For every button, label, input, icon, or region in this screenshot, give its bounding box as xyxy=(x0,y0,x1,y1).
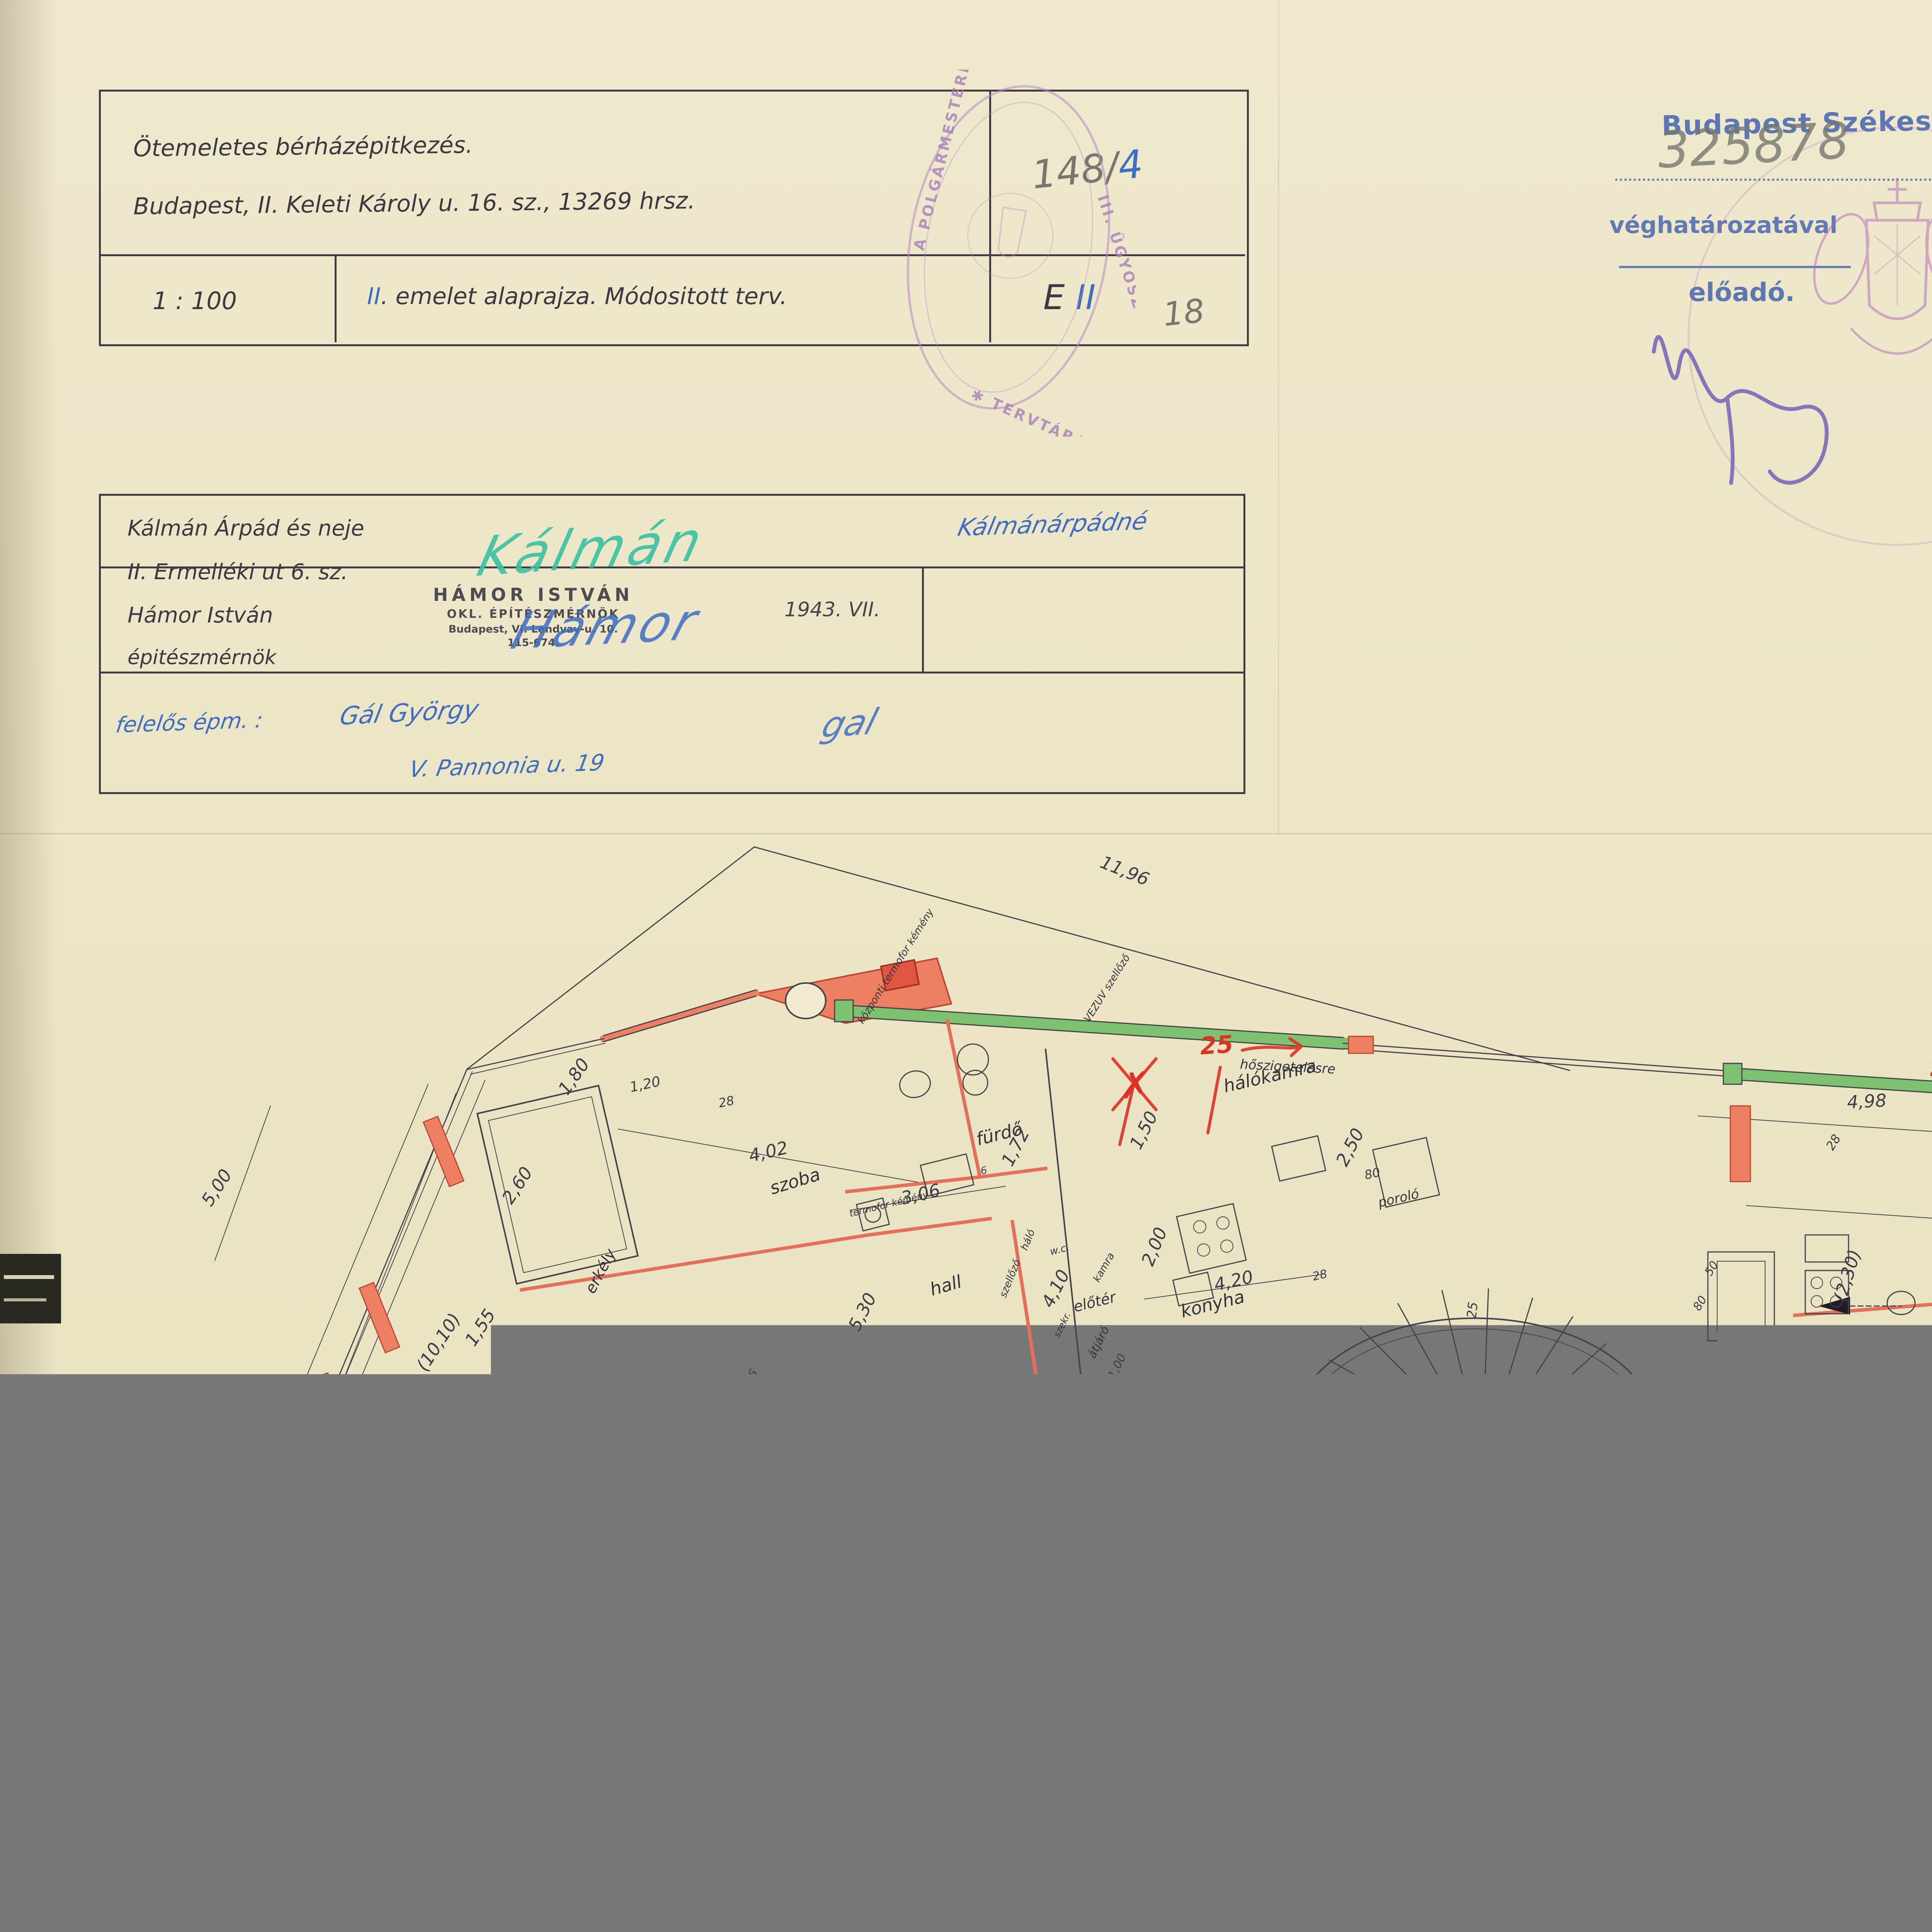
dim-label: 11,96 xyxy=(1097,851,1152,889)
dim-label: (1,70) xyxy=(376,1534,422,1590)
dim-label: 1,20 xyxy=(494,1449,533,1493)
room-label: erkély xyxy=(582,1245,620,1296)
dim-label: 1,31 xyxy=(1485,1375,1504,1408)
dim-label: 2,50 xyxy=(1478,1764,1510,1808)
dim-label: 2,10 xyxy=(1109,1541,1135,1576)
dim-label: 3,15 xyxy=(720,1825,763,1867)
dim-label: 28 xyxy=(1311,1267,1328,1284)
room-label: konyha xyxy=(1784,1416,1849,1442)
room-label: poroló xyxy=(1718,1326,1761,1345)
room-label: előtér xyxy=(1837,1612,1885,1634)
dim-label: 30 xyxy=(1301,1457,1318,1473)
room-label: szoba xyxy=(628,1411,684,1446)
room-label: konyha xyxy=(1191,1842,1255,1869)
room-label: szoba xyxy=(806,1694,862,1727)
dim-label: 6 xyxy=(1284,1894,1292,1907)
dim-label: 1,52 xyxy=(1797,1651,1830,1696)
dim-label: 6 xyxy=(1767,1487,1781,1498)
room-label: átjáró xyxy=(1028,1731,1076,1757)
dim-label: 82 xyxy=(1313,1661,1332,1678)
dim-label: 2,30 xyxy=(1201,1887,1242,1910)
dim-label: 82 xyxy=(1163,1661,1181,1678)
dim-label: 16 xyxy=(740,1367,761,1388)
room-label: konyha xyxy=(1179,1286,1247,1322)
room-label: w.c. xyxy=(1891,1321,1916,1338)
dim-label: 1,60 xyxy=(1470,1506,1495,1548)
dim-label: 1,00 xyxy=(1105,1352,1129,1381)
room-label: hall xyxy=(927,1271,964,1300)
dim-label: 1,40 xyxy=(1467,1595,1496,1638)
dim-label: 4,66 xyxy=(1852,1745,1877,1786)
room-label: fürdő xyxy=(981,1839,1029,1864)
dim-label: 1,20 xyxy=(628,1073,662,1095)
dim-label: 2,50 xyxy=(1332,1125,1368,1170)
dim-label: 6 xyxy=(836,1533,845,1546)
dim-label: 6 xyxy=(1524,1896,1531,1908)
dim-label: 2,50 xyxy=(1000,1889,1041,1912)
dim-label: 1,20 xyxy=(1877,1354,1907,1371)
dim-label: 80 xyxy=(1363,1165,1381,1182)
dim-label: 100 xyxy=(1871,1392,1893,1419)
dim-label: 4,55 xyxy=(923,1531,967,1561)
dim-label: 4,20 xyxy=(1212,1266,1255,1296)
room-label: szellőző xyxy=(1905,1592,1932,1608)
dim-label: 3,60 xyxy=(1232,1740,1264,1784)
room-label: w.c. xyxy=(1157,1608,1185,1627)
dim-label: 2,72 xyxy=(1764,1605,1798,1649)
dim-label: 1,50 xyxy=(1125,1108,1162,1153)
red-annotation: ✗ xyxy=(1120,1064,1151,1107)
dim-label: 1,85 xyxy=(1254,1509,1296,1536)
dim-label: 3,20 xyxy=(1333,1771,1365,1815)
dim-label: 16 xyxy=(1401,1893,1417,1908)
dim-label: 28 xyxy=(1823,1132,1844,1153)
room-label: átjáró xyxy=(1085,1324,1112,1361)
dim-label: 90 xyxy=(1762,1427,1781,1447)
dim-label: 1,20 xyxy=(1361,1655,1402,1680)
dim-label: 75 xyxy=(599,1839,621,1861)
dim-label: 5,90 xyxy=(674,1612,711,1656)
room-label: kamra xyxy=(1091,1251,1117,1284)
dim-label: 6 xyxy=(1051,1665,1058,1677)
dim-label: (10,10) xyxy=(412,1309,465,1375)
dim-label: 5,00 xyxy=(197,1165,236,1210)
dim-label: 1,31 xyxy=(1342,1466,1384,1494)
room-label: poroló xyxy=(1376,1186,1421,1211)
dim-label: (2,30) xyxy=(1830,1247,1865,1304)
dim-label: 3,15 xyxy=(572,1717,616,1759)
room-label: szekr. xyxy=(1051,1310,1073,1339)
room-label: szoba xyxy=(767,1163,823,1199)
dim-label: 25 xyxy=(1464,1301,1481,1319)
dim-label: 3,90 xyxy=(1822,1563,1864,1590)
red-annotation: 25 xyxy=(1929,1051,1932,1082)
room-label: hall xyxy=(910,1493,946,1522)
dim-label: 50 xyxy=(1702,1259,1721,1278)
dim-label: 1,30 xyxy=(1232,1618,1253,1650)
dim-label: 95 xyxy=(1097,1661,1115,1678)
dim-label: 4,02 xyxy=(747,1137,790,1167)
floor-plan: fürdőhálókamraporolókonyhahallszobaerkél… xyxy=(0,0,1932,1932)
dim-label: 4,56 xyxy=(1427,1508,1451,1550)
dim-label: 2,00 xyxy=(1491,1668,1522,1712)
dim-label: 2,60 xyxy=(418,1449,457,1493)
dim-label: 4,98 xyxy=(1847,1090,1887,1112)
dim-label: 80 xyxy=(1690,1293,1710,1313)
dim-label: 5,30 xyxy=(844,1289,881,1334)
room-label: főzőf. xyxy=(1358,1625,1396,1645)
dim-label: (15,10) xyxy=(351,1379,404,1444)
dim-label: 1,31 xyxy=(1540,1466,1583,1494)
dim-label: 1,42 xyxy=(1228,1657,1270,1682)
dim-label: 230 xyxy=(1107,1691,1130,1720)
room-label: háló xyxy=(1019,1228,1037,1252)
dim-label: 84 xyxy=(1366,1514,1385,1532)
room-label: hálókamra xyxy=(1312,1843,1396,1869)
dim-label: 3,30 xyxy=(1230,1489,1257,1532)
red-annotation: 12 xyxy=(1664,1574,1688,1595)
room-label: szoba xyxy=(1629,1820,1682,1844)
dim-label: 28 xyxy=(717,1093,736,1111)
dim-label: 2,10 xyxy=(1330,1887,1370,1910)
dim-label: 5,00 xyxy=(278,1719,317,1764)
dim-label: 1,80 xyxy=(554,1054,594,1099)
scanned-plan-sheet: Ötemeletes bérházépitkezés. Budapest, II… xyxy=(0,0,1932,1932)
plan-labels: fürdőhálókamraporolókonyhahallszobaerkél… xyxy=(197,851,1932,1932)
dim-label: 2,10 xyxy=(1133,1517,1175,1545)
room-label: VEZUV szellőző xyxy=(1082,952,1133,1024)
room-label: termofor kémény xyxy=(1360,1694,1442,1716)
red-annotation: 12 xyxy=(1323,1515,1344,1534)
dim-label: 1,55 xyxy=(461,1305,500,1350)
red-annotation: 25 xyxy=(1199,1030,1234,1060)
dim-label: 4,10 xyxy=(1037,1266,1074,1311)
room-label: szoba xyxy=(1877,1820,1929,1844)
dim-label: 2,60 xyxy=(1100,1786,1134,1830)
dim-label: 1,10 xyxy=(1562,1385,1607,1421)
room-label: fürdő xyxy=(1466,1839,1513,1864)
dim-label: 2,00 xyxy=(1137,1224,1171,1269)
room-label: átszell. xyxy=(1199,1639,1236,1656)
dim-label: 4,56 xyxy=(1701,1757,1726,1799)
dim-label: 3,63 xyxy=(1548,1580,1590,1604)
dim-label: 4,42 xyxy=(634,1488,678,1519)
room-label: átjáró xyxy=(1899,1393,1932,1415)
room-label: előtér xyxy=(1072,1288,1119,1315)
room-label: kam. xyxy=(1883,1370,1913,1386)
dim-label: 20 xyxy=(1228,1930,1248,1932)
dim-label: 8,96 xyxy=(1696,1689,1720,1731)
room-label: szekrény xyxy=(1051,1674,1078,1721)
dim-label: 1,30 xyxy=(1233,1466,1276,1494)
room-label: órák xyxy=(1289,1601,1318,1617)
